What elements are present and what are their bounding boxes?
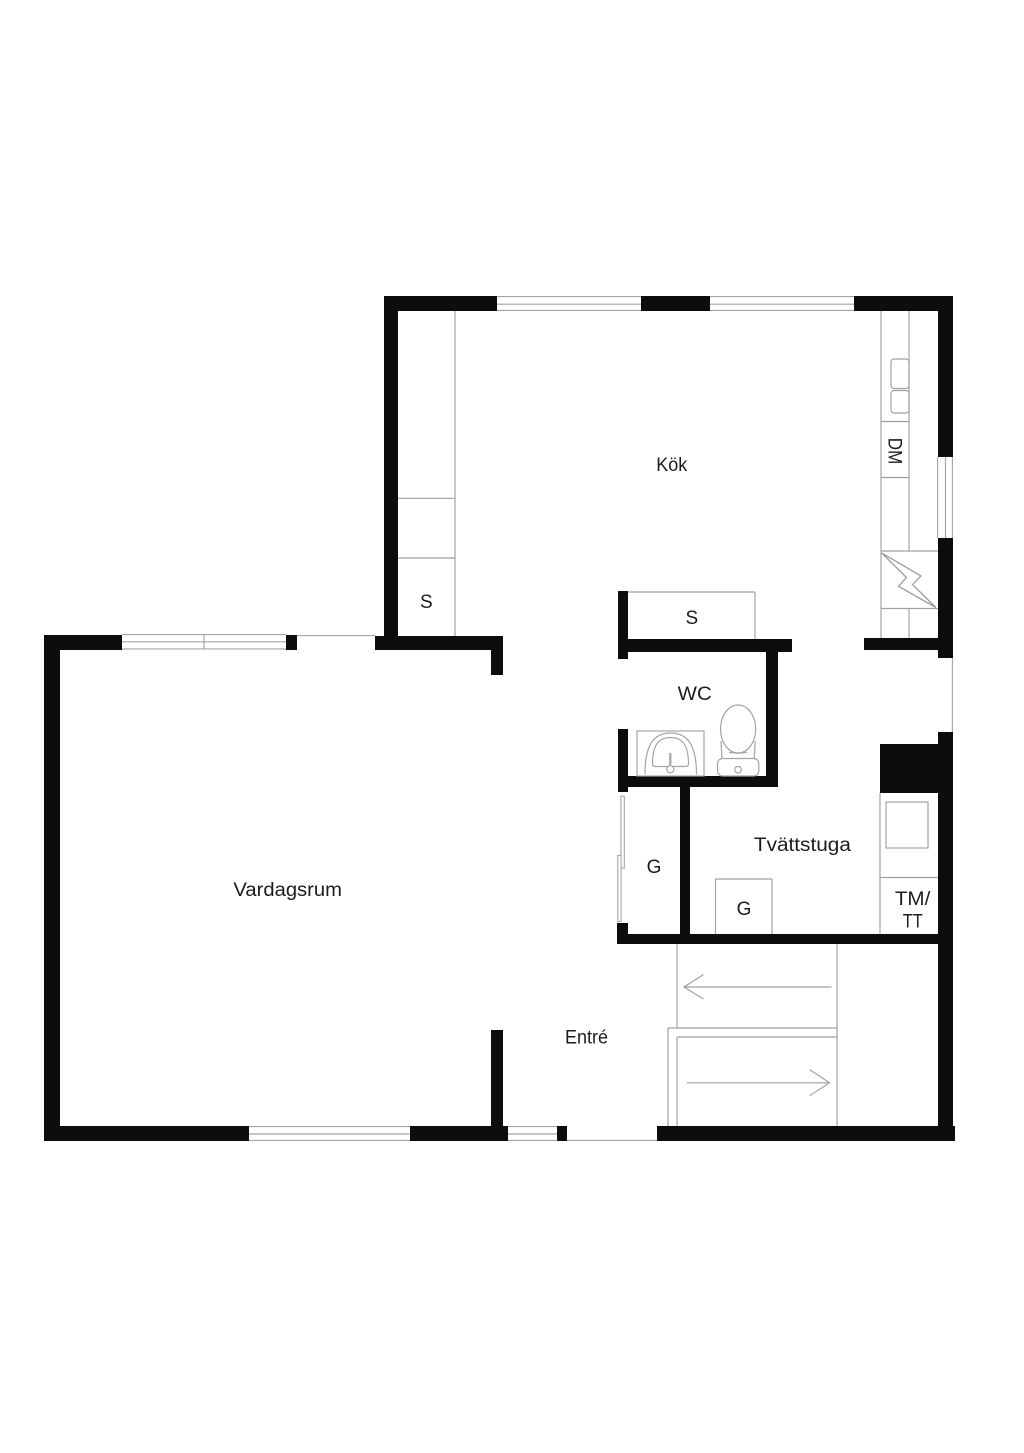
svg-text:Kök: Kök [656,455,687,476]
svg-text:S: S [420,592,433,613]
svg-text:G: G [647,857,662,878]
svg-text:DM: DM [883,438,904,465]
svg-text:G: G [737,899,752,920]
svg-text:TT: TT [903,912,923,933]
svg-text:Entré: Entré [565,1028,608,1049]
svg-text:TM/: TM/ [895,889,931,910]
svg-text:Vardagsrum: Vardagsrum [233,880,342,901]
svg-text:S: S [686,608,699,629]
svg-text:WC: WC [678,684,712,705]
svg-text:Tvättstuga: Tvättstuga [754,835,851,856]
